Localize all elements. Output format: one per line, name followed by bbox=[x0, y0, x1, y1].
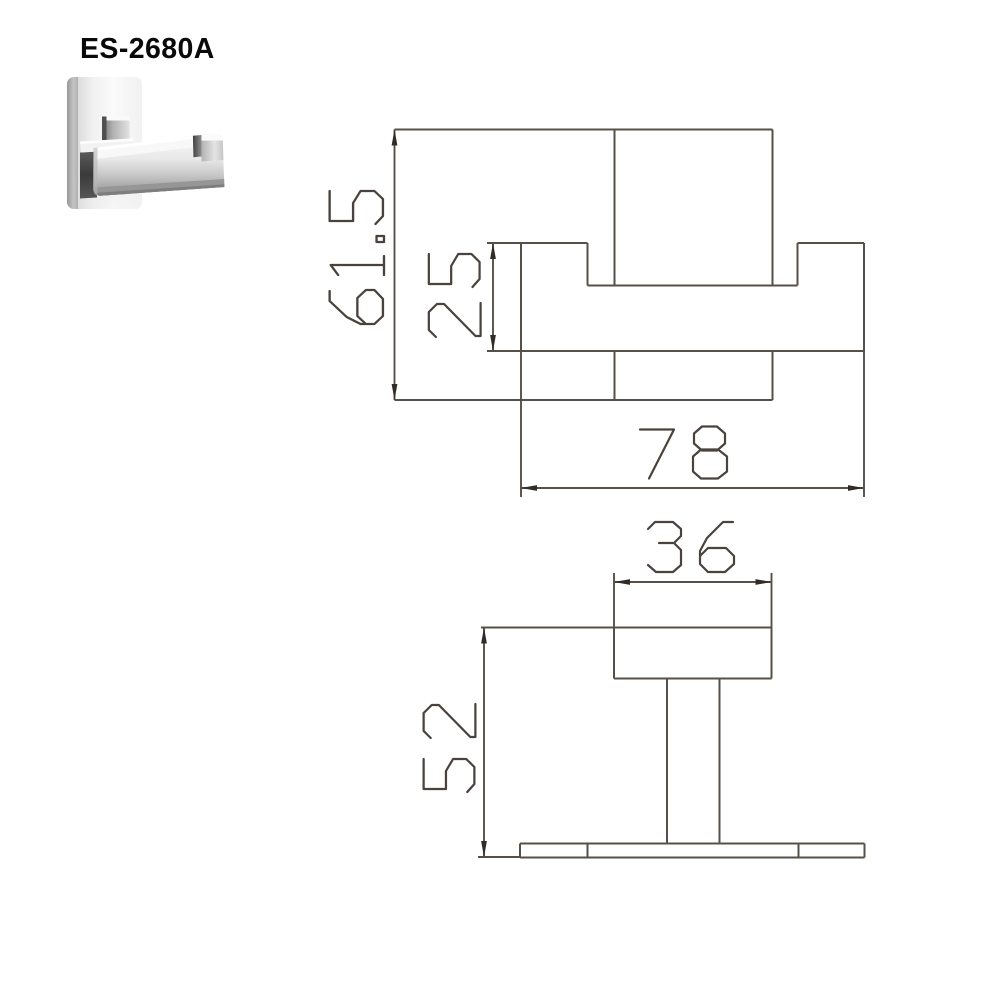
svg-text:ES-2680A: ES-2680A bbox=[80, 33, 215, 65]
